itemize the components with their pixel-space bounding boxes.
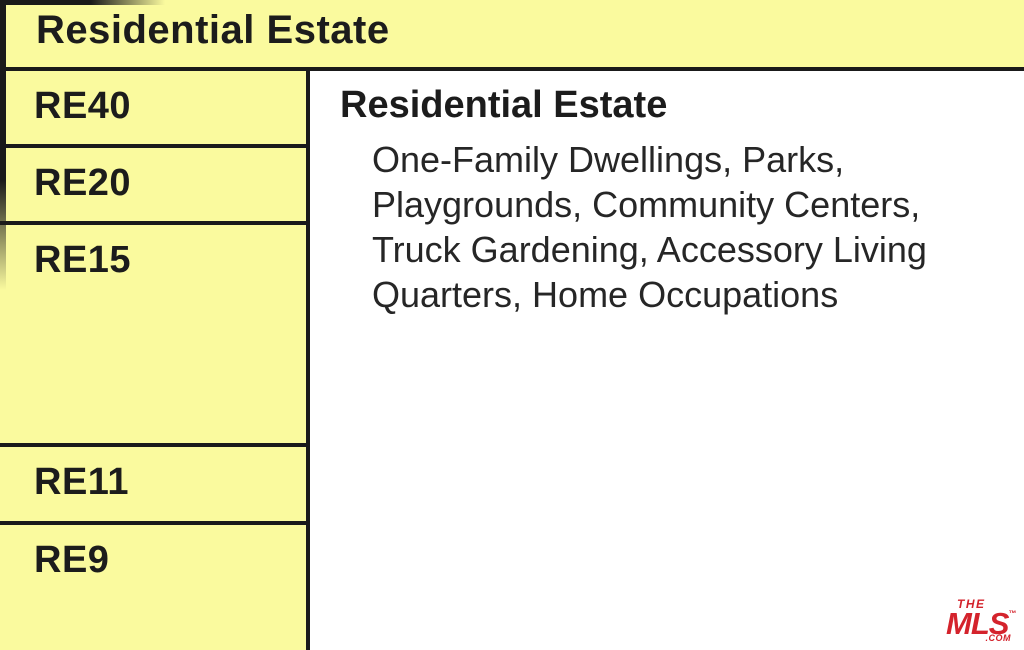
table-row: RE40 [0, 71, 306, 148]
table-row: RE15 [0, 225, 306, 447]
zone-code-re20: RE20 [34, 162, 131, 204]
description-line: One-Family Dwellings, Parks, [372, 137, 1024, 182]
table-row: RE9 [0, 525, 306, 650]
zoning-legend-sheet: Residential Estate RE40 RE20 RE15 RE11 R… [0, 0, 1024, 650]
description-line: Quarters, Home Occupations [372, 272, 1024, 317]
page-title: Residential Estate [36, 8, 390, 53]
detail-description: One-Family Dwellings, Parks, Playgrounds… [372, 137, 1024, 317]
trademark-symbol: ™ [1008, 609, 1016, 618]
zone-code-re15: RE15 [34, 239, 131, 281]
zone-code-re11: RE11 [34, 461, 129, 503]
table-row: RE11 [0, 447, 306, 525]
table-row: RE20 [0, 148, 306, 225]
zone-code-column: RE40 RE20 RE15 RE11 RE9 [0, 71, 310, 650]
detail-heading: Residential Estate [340, 84, 1024, 127]
zone-code-re40: RE40 [34, 85, 131, 127]
zone-code-re9: RE9 [34, 539, 109, 581]
description-line: Playgrounds, Community Centers, [372, 182, 1024, 227]
header-band: Residential Estate [0, 0, 1024, 71]
description-line: Truck Gardening, Accessory Living [372, 227, 1024, 272]
left-border-artifact [0, 0, 6, 290]
zone-detail-panel: Residential Estate One-Family Dwellings,… [310, 71, 1024, 650]
themls-logo: THE MLS™ .COM [946, 598, 1014, 643]
top-border-artifact [0, 0, 165, 5]
